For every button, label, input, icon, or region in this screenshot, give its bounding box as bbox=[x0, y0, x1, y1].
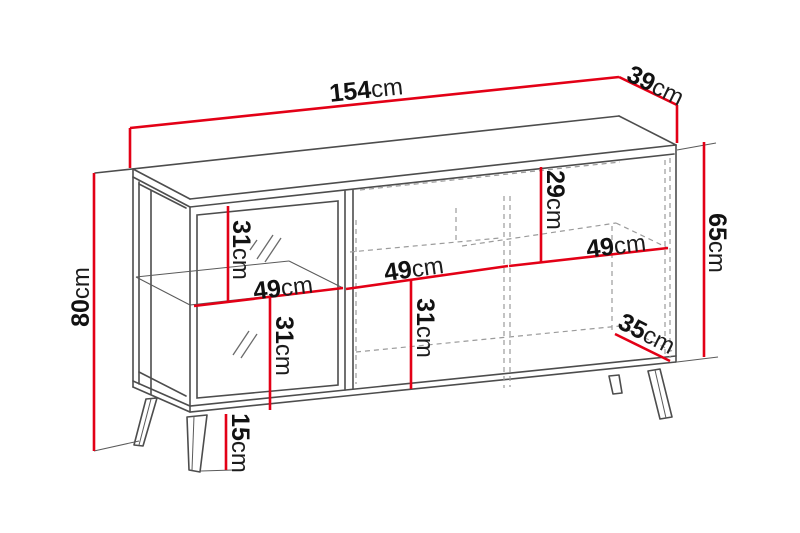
label-leg-height: 15cm bbox=[226, 413, 254, 473]
top-lip-edge bbox=[190, 154, 674, 207]
bottom-lower-edge bbox=[133, 362, 676, 412]
body-height-top-witness bbox=[677, 143, 716, 150]
label-total-width: 154cm bbox=[328, 72, 404, 108]
label-middle-shelf-width: 49cm bbox=[382, 251, 445, 287]
top-front-edge bbox=[190, 145, 676, 199]
label-left-top-height: 31cm bbox=[227, 220, 255, 280]
body-height-bottom-witness bbox=[677, 357, 718, 362]
sideboard-drawing: 154cm 39cm 80cm 65cm 31cm 49cm 31cm 49cm… bbox=[0, 0, 800, 533]
dimension-diagram: 154cm 39cm 80cm 65cm 31cm 49cm 31cm 49cm… bbox=[0, 0, 800, 533]
height-bottom-witness bbox=[94, 441, 139, 451]
label-left-shelf-width: 49cm bbox=[252, 271, 315, 306]
door-shelf-back-edge bbox=[136, 261, 289, 277]
label-total-depth: 39cm bbox=[622, 60, 688, 111]
door-shelf-left-edge bbox=[136, 277, 190, 305]
label-right-shelf-width: 49cm bbox=[585, 229, 648, 264]
bottom-upper-edge bbox=[133, 356, 676, 406]
label-total-height: 80cm bbox=[67, 267, 95, 327]
top-left-edge bbox=[133, 169, 190, 199]
right-bottom-back-edge bbox=[509, 326, 620, 337]
middle-shelf-back-edge bbox=[350, 238, 500, 252]
leg-back-right bbox=[609, 375, 622, 394]
leg-front-left bbox=[187, 415, 207, 472]
label-right-top-height: 29cm bbox=[541, 170, 569, 230]
top-lip-left-edge bbox=[133, 177, 190, 207]
side-frame-top-edge bbox=[139, 184, 186, 208]
label-left-bottom-height: 31cm bbox=[270, 316, 298, 376]
label-body-height: 65cm bbox=[703, 213, 731, 273]
top-right-edge bbox=[619, 116, 676, 145]
label-middle-bottom-height: 31cm bbox=[411, 298, 439, 358]
